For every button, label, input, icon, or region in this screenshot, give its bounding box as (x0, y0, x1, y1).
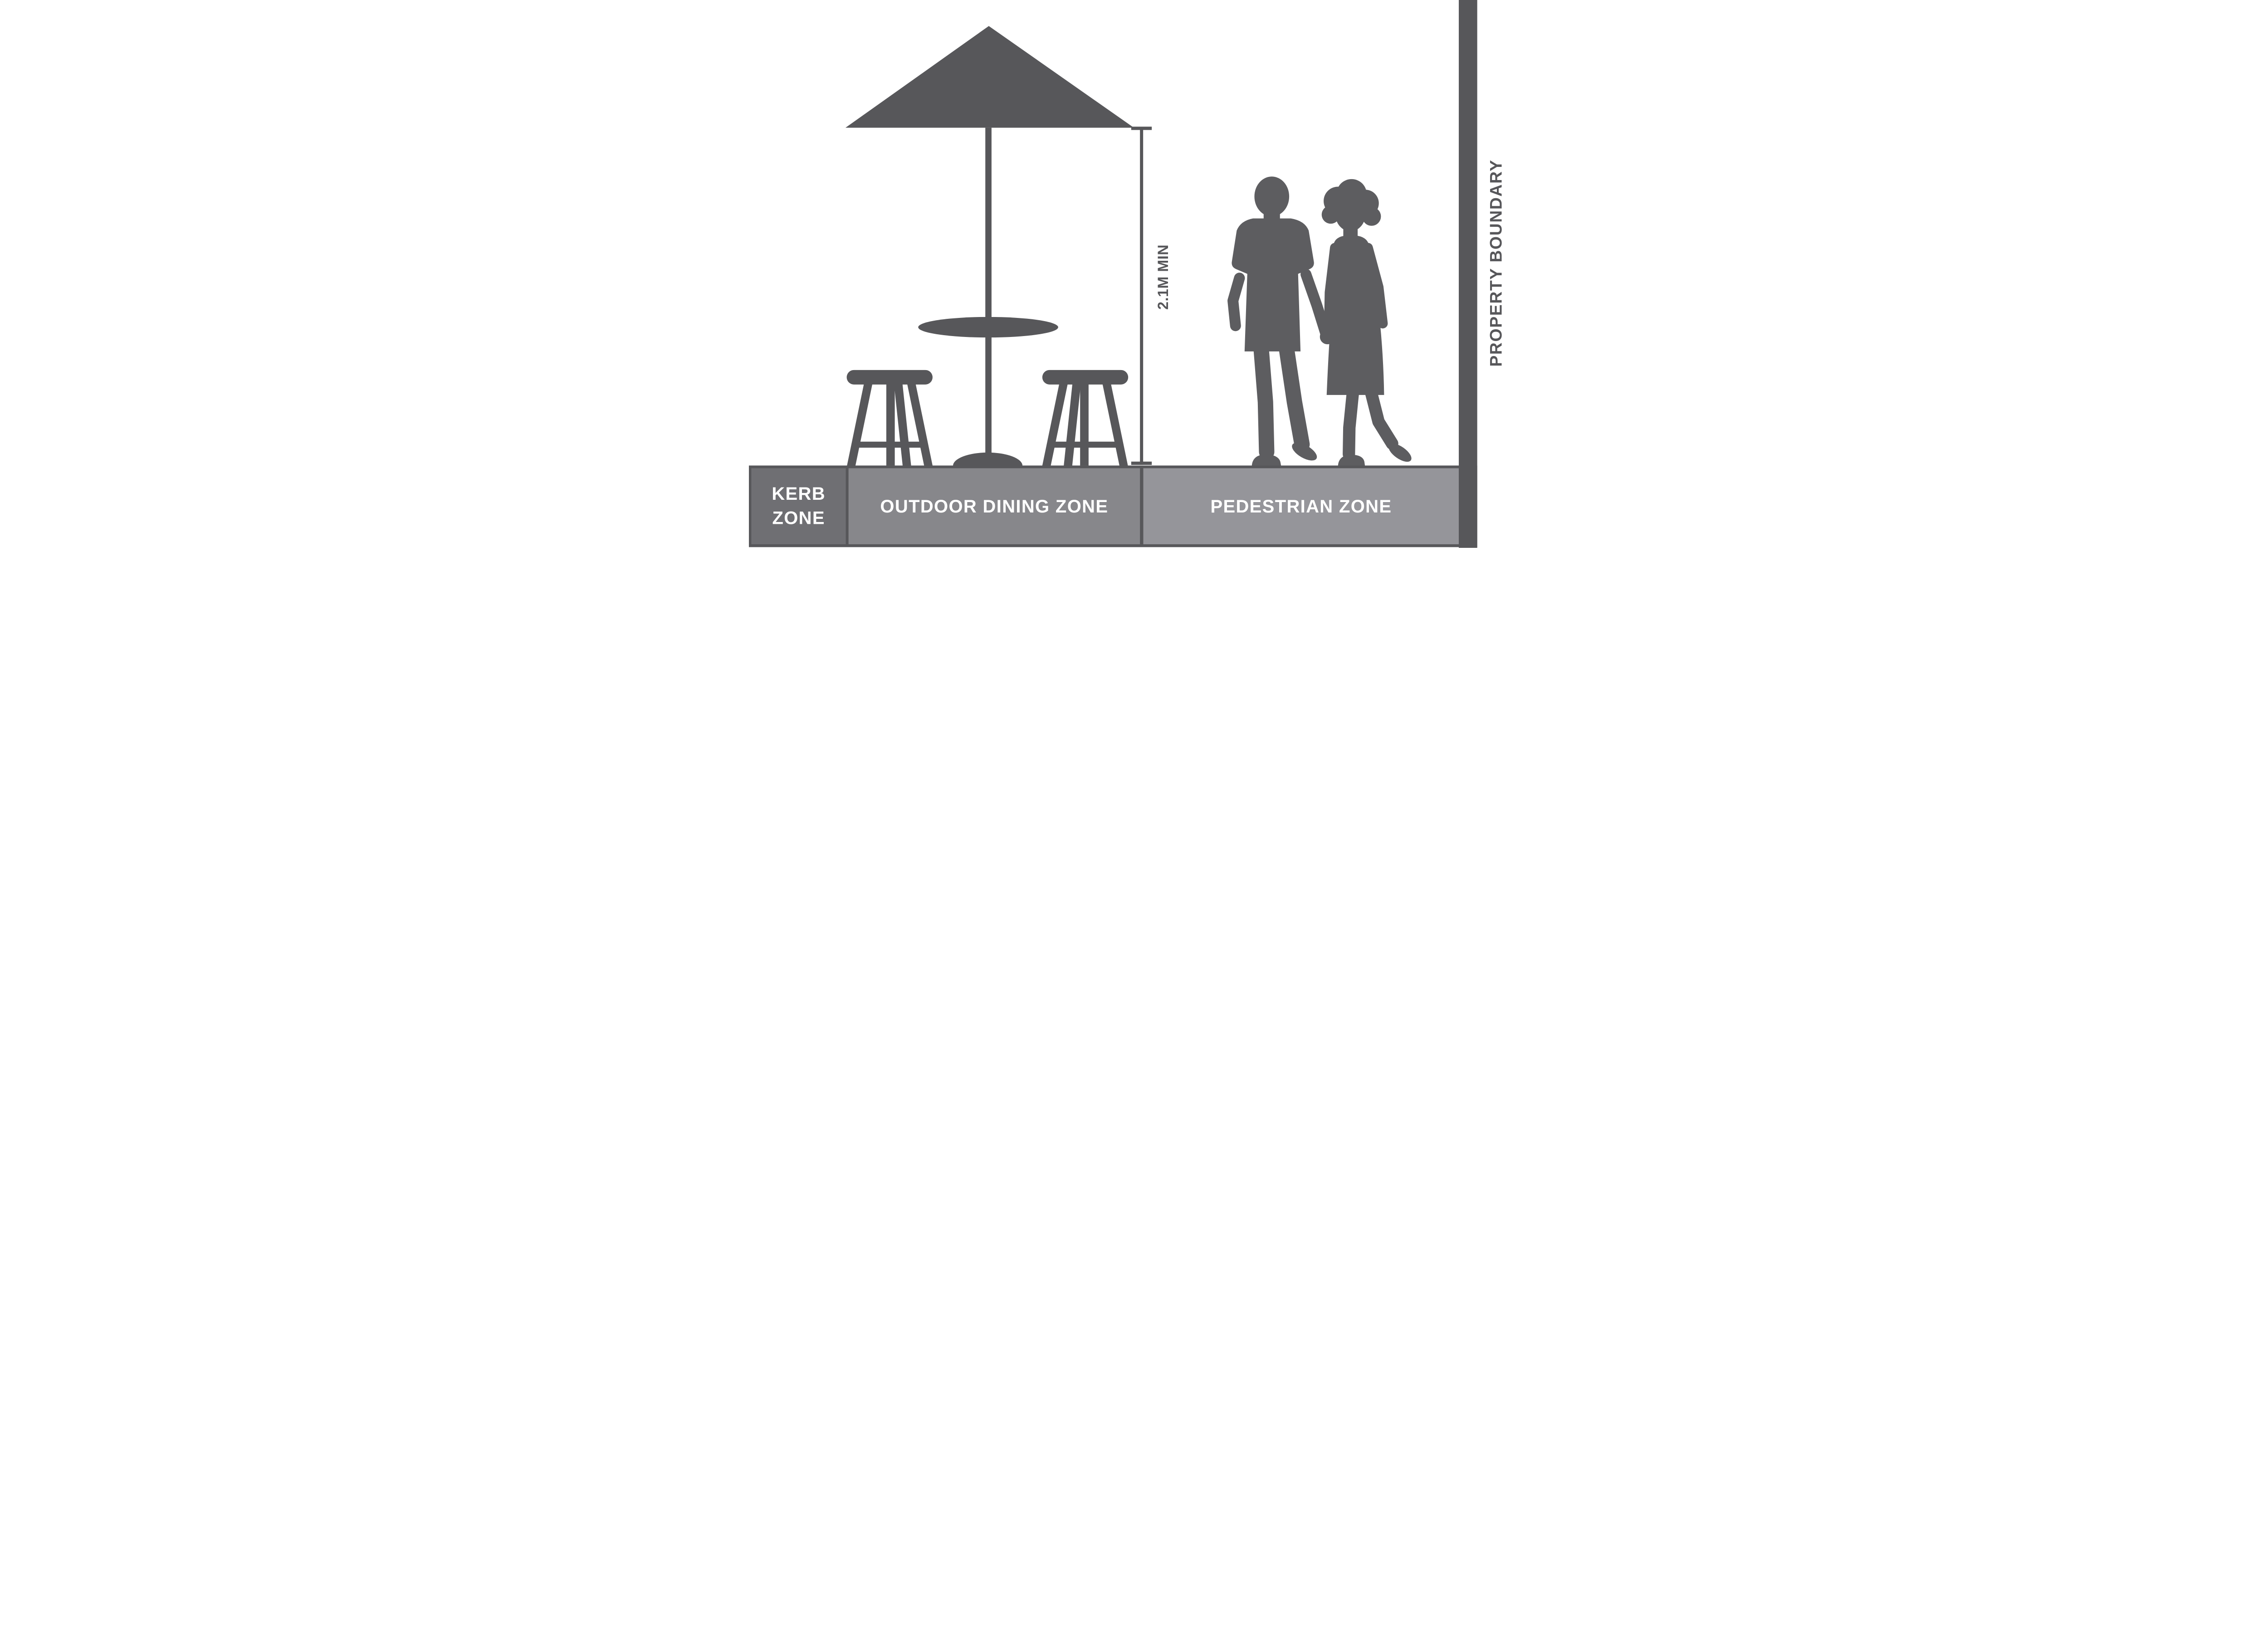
stool-seat (1042, 370, 1128, 385)
woman-head (1335, 196, 1366, 231)
dimension-label: 2.1M MIN (1155, 244, 1171, 310)
stool-crossbar (1051, 442, 1120, 448)
pedestrian-zone-label: PEDESTRIAN ZONE (1210, 497, 1392, 517)
property-boundary-wall (1459, 0, 1477, 548)
outdoor-dining-zone-label: OUTDOOR DINING ZONE (880, 497, 1108, 517)
table-top (918, 317, 1058, 337)
stool-crossbar (855, 442, 924, 448)
stool-leg (1080, 382, 1089, 465)
umbrella-pole (985, 128, 992, 466)
kerb-zone-label-line-2: ZONE (772, 508, 825, 528)
footpath-zone-bar: KERB ZONE OUTDOOR DINING ZONE PEDESTRIAN… (749, 465, 1477, 547)
outdoor-dining-diagram: 2.1M MIN (748, 0, 1520, 548)
woman-left-leg (1349, 393, 1353, 454)
property-boundary-label: PROPERTY BOUNDARY (1486, 159, 1505, 366)
man-left-arm (1233, 278, 1239, 326)
kerb-zone-label-line-1: KERB (772, 484, 826, 504)
diagram-canvas: 2.1M MIN (748, 0, 1520, 548)
kerb-zone-panel (751, 468, 846, 544)
man-left-leg (1261, 349, 1266, 452)
dimension-line (1140, 128, 1143, 465)
joined-hands (1320, 329, 1335, 344)
dimension-bottom-cap (1131, 462, 1152, 465)
stool-leg (886, 382, 895, 465)
woman-left-arm (1329, 248, 1335, 333)
stool-seat (847, 370, 933, 385)
